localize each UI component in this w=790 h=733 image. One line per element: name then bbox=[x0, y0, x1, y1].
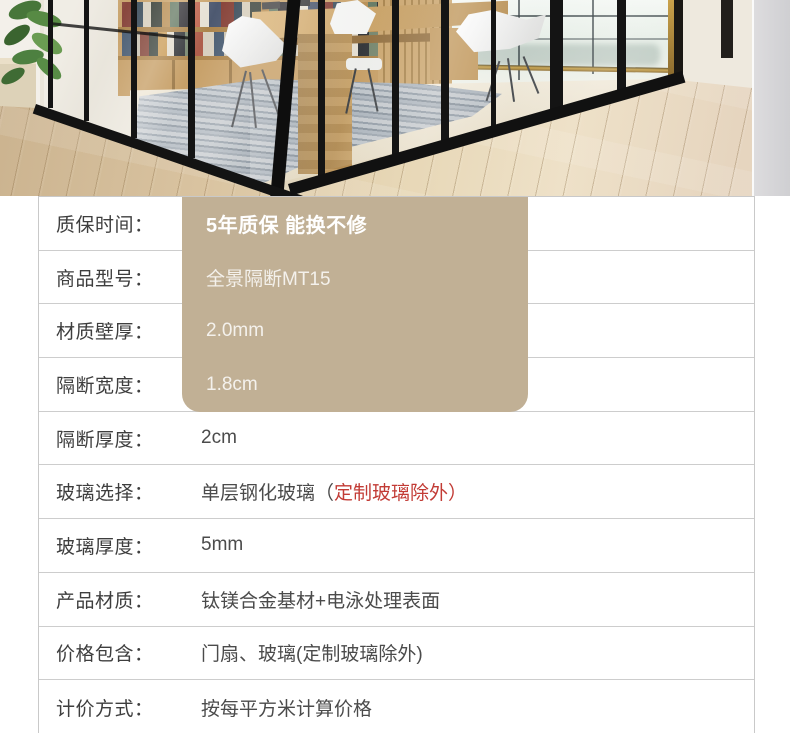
spec-label: 计价方式： bbox=[39, 694, 201, 721]
spec-label: 质保时间： bbox=[39, 210, 201, 237]
photo-frame-post bbox=[392, 0, 399, 160]
spec-value: 钛镁合金基材+电泳处理表面 bbox=[201, 586, 754, 613]
photo-right-edge-panel bbox=[752, 0, 790, 196]
spec-value: 门扇、玻璃(定制玻璃除外) bbox=[201, 639, 754, 666]
spec-label: 隔断宽度： bbox=[39, 371, 201, 398]
spec-row-glass-thickness: 玻璃厚度： 5mm bbox=[39, 519, 754, 573]
spec-row-glass-choice: 玻璃选择： 单层钢化玻璃（定制玻璃除外） bbox=[39, 465, 754, 519]
photo-frame-post bbox=[550, 0, 563, 114]
spec-value: 5mm bbox=[201, 534, 754, 556]
spec-value: 2cm bbox=[201, 427, 754, 449]
spec-row-material: 产品材质： 钛镁合金基材+电泳处理表面 bbox=[39, 573, 754, 627]
spec-label: 玻璃选择： bbox=[39, 478, 201, 505]
photo-frame-post bbox=[491, 0, 496, 131]
product-detail-page: 5年质保 能换不修 全景隔断MT15 2.0mm 1.8cm 质保时间： 商品型… bbox=[0, 0, 790, 733]
highlight-value-partition-width: 1.8cm bbox=[182, 358, 528, 412]
highlight-value-model: 全景隔断MT15 bbox=[182, 251, 528, 305]
spec-row-price-includes: 价格包含： 门扇、玻璃(定制玻璃除外) bbox=[39, 627, 754, 681]
highlight-value-wall-thickness: 2.0mm bbox=[182, 305, 528, 359]
photo-frame-post bbox=[84, 0, 89, 121]
spec-label: 材质壁厚： bbox=[39, 317, 201, 344]
spec-value: 按每平方米计算价格 bbox=[201, 694, 754, 721]
product-photo bbox=[0, 0, 790, 196]
spec-label: 商品型号： bbox=[39, 264, 201, 291]
spec-row-pricing-method: 计价方式： 按每平方米计算价格 bbox=[39, 680, 754, 733]
photo-frame-post bbox=[48, 0, 53, 108]
spec-label: 产品材质： bbox=[39, 586, 201, 613]
spec-label: 隔断厚度： bbox=[39, 425, 201, 452]
spec-value: 单层钢化玻璃（定制玻璃除外） bbox=[201, 478, 754, 505]
photo-frame-post bbox=[441, 0, 449, 146]
photo-frame-post bbox=[318, 0, 325, 180]
spec-label: 玻璃厚度： bbox=[39, 532, 201, 559]
spec-label: 价格包含： bbox=[39, 639, 201, 666]
photo-frame-post bbox=[674, 0, 683, 79]
photo-frame-post bbox=[188, 0, 195, 158]
highlight-box: 5年质保 能换不修 全景隔断MT15 2.0mm 1.8cm bbox=[182, 197, 528, 412]
highlight-value-warranty: 5年质保 能换不修 bbox=[182, 197, 528, 251]
photo-wall-dark-post bbox=[721, 0, 733, 58]
glass-choice-main: 单层钢化玻璃（ bbox=[201, 483, 334, 504]
spec-row-partition-thickness: 隔断厚度： 2cm bbox=[39, 412, 754, 466]
glass-choice-note: 定制玻璃除外） bbox=[334, 483, 467, 504]
spec-table: 5年质保 能换不修 全景隔断MT15 2.0mm 1.8cm 质保时间： 商品型… bbox=[38, 196, 755, 733]
photo-frame-post bbox=[617, 0, 626, 95]
photo-frame-post bbox=[131, 0, 137, 138]
